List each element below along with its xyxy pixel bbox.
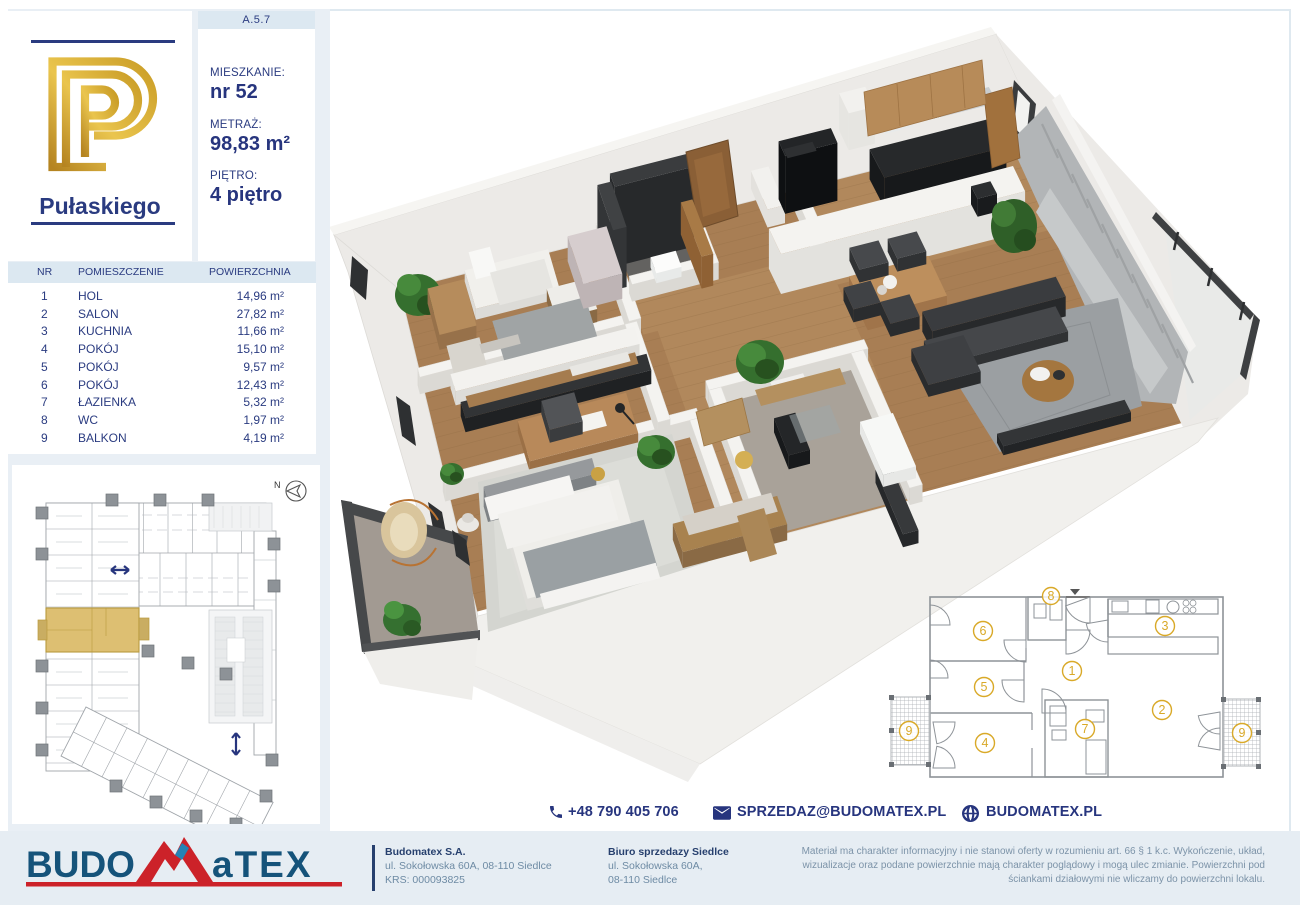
svg-text:8: 8 xyxy=(1048,589,1055,603)
svg-text:3: 3 xyxy=(1162,619,1169,633)
svg-text:7: 7 xyxy=(1082,722,1089,736)
svg-text:4: 4 xyxy=(982,736,989,750)
svg-text:BUDO: BUDO xyxy=(26,844,135,885)
svg-text:9: 9 xyxy=(906,724,913,738)
svg-text:5: 5 xyxy=(981,680,988,694)
svg-text:1: 1 xyxy=(1069,664,1076,678)
svg-text:aTEX: aTEX xyxy=(212,844,313,885)
svg-text:2: 2 xyxy=(1159,703,1166,717)
svg-text:9: 9 xyxy=(1239,726,1246,740)
svg-text:6: 6 xyxy=(980,624,987,638)
